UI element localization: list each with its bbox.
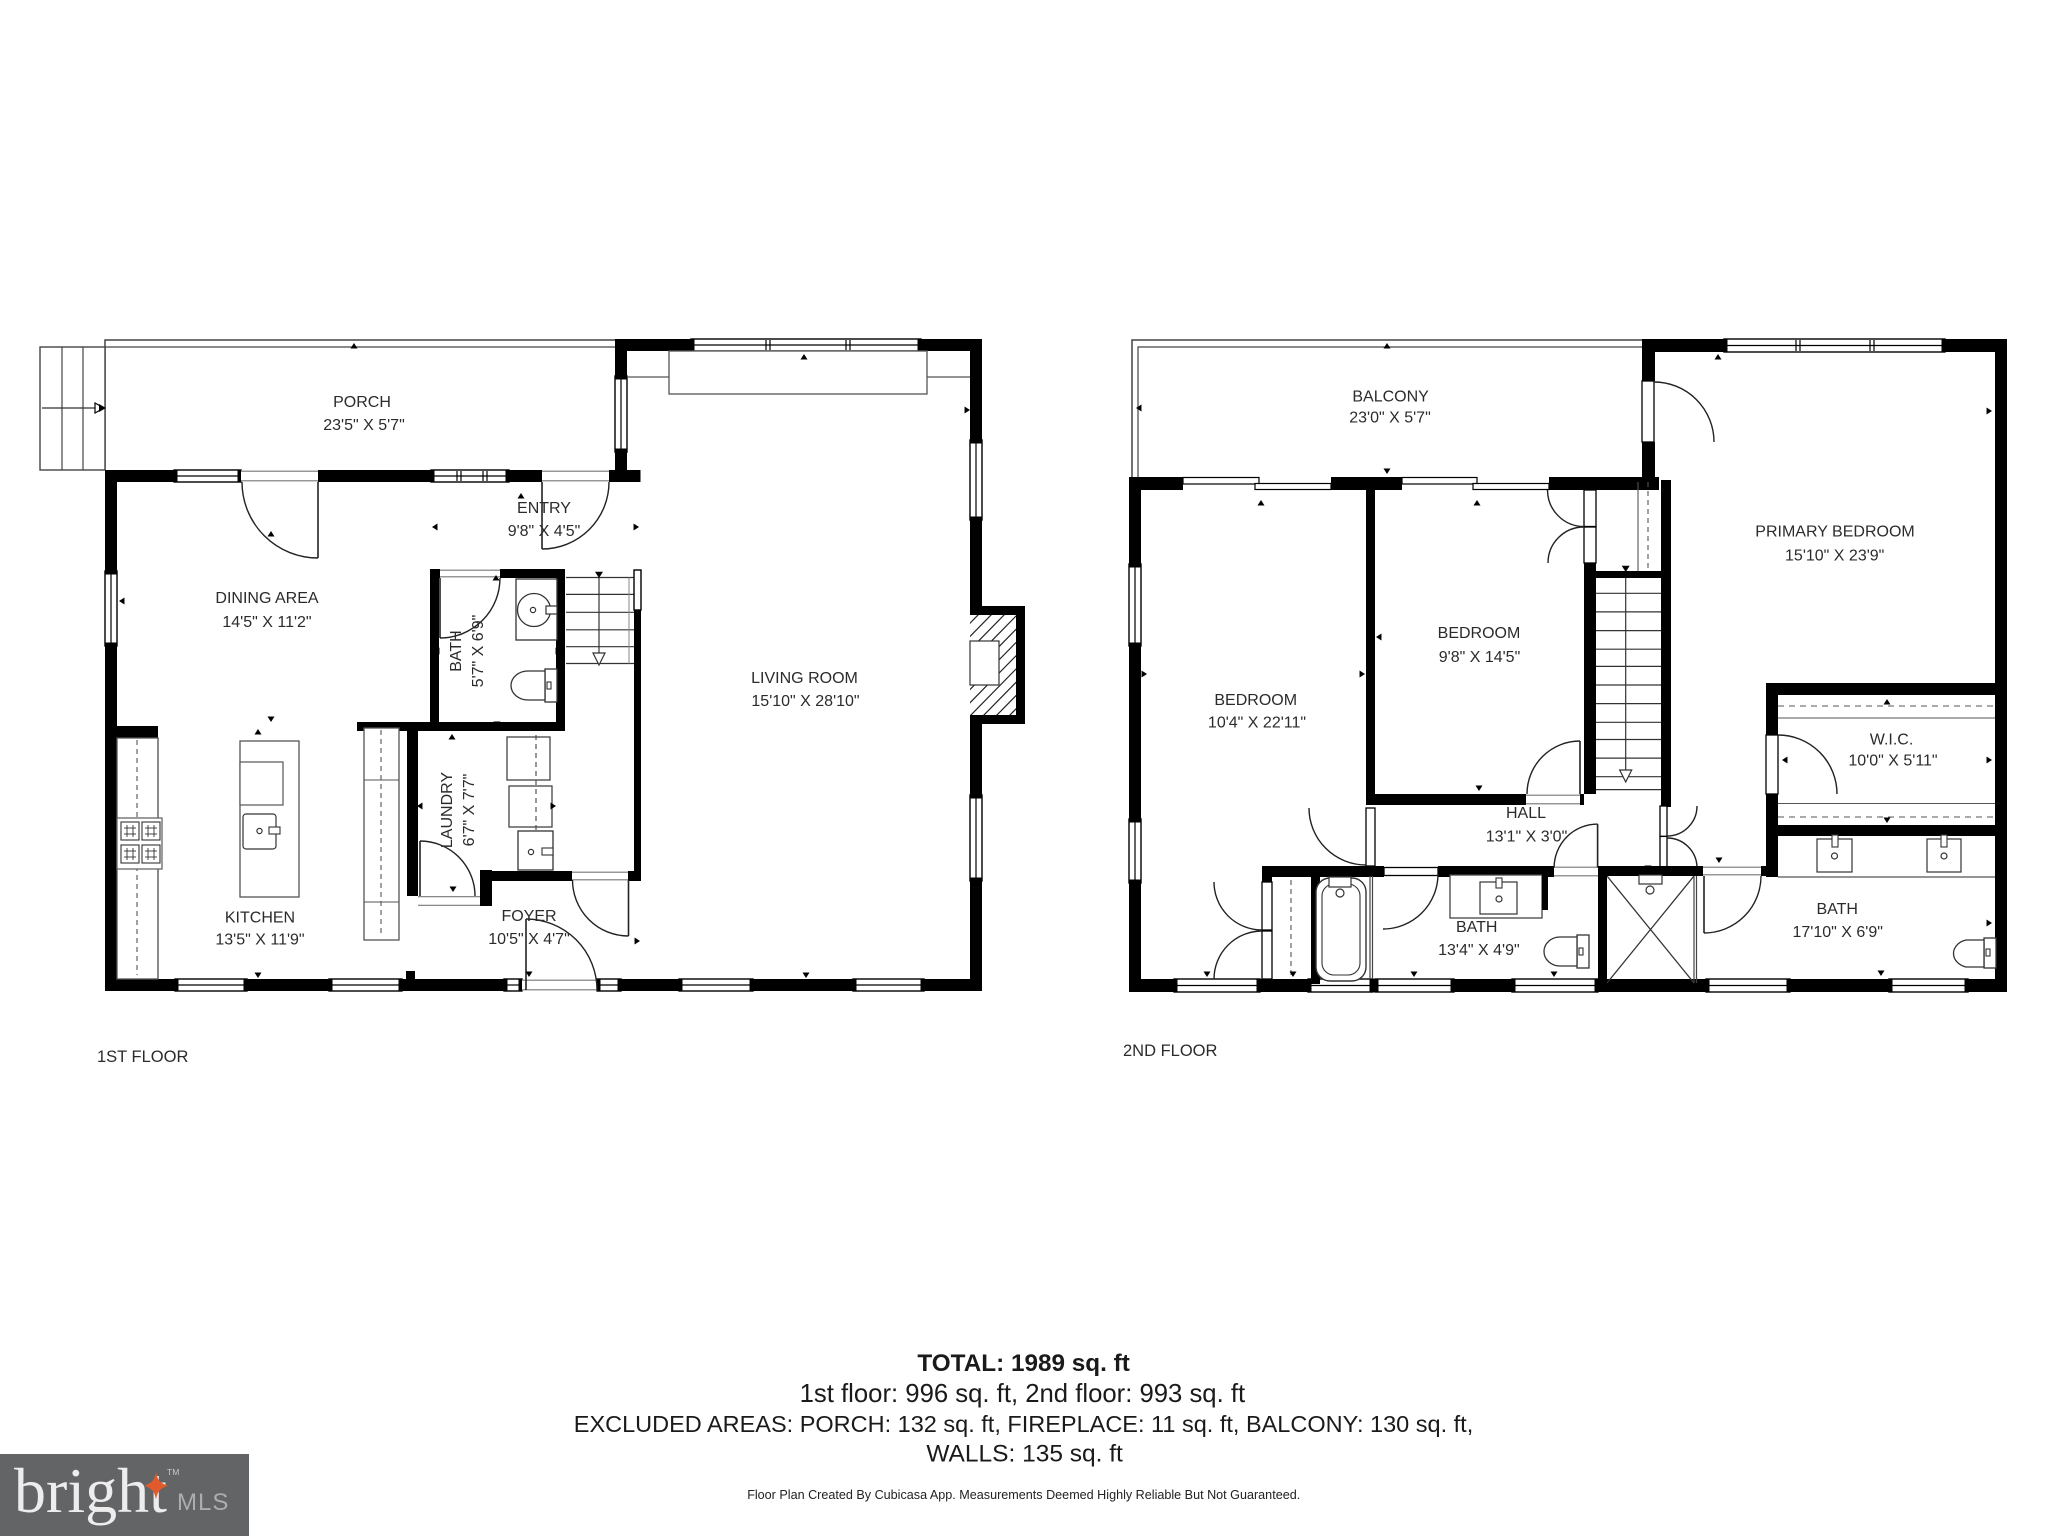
svg-text:10'5" X 4'7": 10'5" X 4'7" xyxy=(488,931,570,948)
svg-text:13'5" X 11'9": 13'5" X 11'9" xyxy=(215,932,304,949)
svg-text:bright: bright xyxy=(14,1455,167,1526)
svg-text:9'8" X 14'5": 9'8" X 14'5" xyxy=(1439,649,1521,666)
svg-text:PORCH: PORCH xyxy=(333,394,391,411)
svg-text:1ST FLOOR: 1ST FLOOR xyxy=(97,1048,188,1066)
svg-text:15'10" X 23'9": 15'10" X 23'9" xyxy=(1785,548,1884,565)
svg-text:LAUNDRY: LAUNDRY xyxy=(439,772,456,849)
svg-text:17'10" X 6'9": 17'10" X 6'9" xyxy=(1792,924,1882,941)
svg-text:TOTAL: 1989 sq. ft: TOTAL: 1989 sq. ft xyxy=(917,1350,1129,1377)
svg-text:DINING AREA: DINING AREA xyxy=(215,590,318,607)
svg-text:13'1" X 3'0": 13'1" X 3'0" xyxy=(1486,829,1568,846)
svg-text:TM: TM xyxy=(167,1467,179,1477)
svg-text:ENTRY: ENTRY xyxy=(517,500,571,517)
svg-text:13'4" X 4'9": 13'4" X 4'9" xyxy=(1438,942,1520,959)
svg-text:Floor Plan Created By Cubicasa: Floor Plan Created By Cubicasa App. Meas… xyxy=(747,1488,1300,1502)
svg-text:9'8" X 4'5": 9'8" X 4'5" xyxy=(508,523,581,540)
svg-text:BEDROOM: BEDROOM xyxy=(1214,692,1297,709)
svg-text:BEDROOM: BEDROOM xyxy=(1438,625,1521,642)
svg-text:BATH: BATH xyxy=(1456,919,1497,936)
svg-text:MLS: MLS xyxy=(177,1489,229,1516)
svg-text:23'5" X 5'7": 23'5" X 5'7" xyxy=(323,417,405,434)
svg-text:10'0" X 5'11": 10'0" X 5'11" xyxy=(1848,753,1937,770)
svg-text:EXCLUDED AREAS: PORCH: 132 sq.: EXCLUDED AREAS: PORCH: 132 sq. ft, FIREP… xyxy=(574,1411,1473,1437)
svg-text:FOYER: FOYER xyxy=(501,908,556,925)
svg-text:BATH: BATH xyxy=(1816,901,1857,918)
svg-text:1st floor: 996 sq. ft, 2nd flo: 1st floor: 996 sq. ft, 2nd floor: 993 sq… xyxy=(800,1380,1246,1408)
svg-text:BALCONY: BALCONY xyxy=(1352,389,1429,406)
svg-text:6'7" X 7'7": 6'7" X 7'7" xyxy=(461,774,478,847)
svg-text:PRIMARY BEDROOM: PRIMARY BEDROOM xyxy=(1755,524,1914,541)
svg-text:2ND FLOOR: 2ND FLOOR xyxy=(1123,1042,1218,1060)
svg-text:10'4" X 22'11": 10'4" X 22'11" xyxy=(1208,715,1306,732)
svg-text:LIVING ROOM: LIVING ROOM xyxy=(751,670,858,687)
svg-text:WALLS: 135 sq. ft: WALLS: 135 sq. ft xyxy=(926,1441,1123,1468)
svg-text:BATH: BATH xyxy=(448,630,465,671)
svg-text:15'10" X 28'10": 15'10" X 28'10" xyxy=(751,693,859,710)
svg-text:23'0" X 5'7": 23'0" X 5'7" xyxy=(1349,410,1431,427)
svg-text:KITCHEN: KITCHEN xyxy=(225,910,295,927)
svg-text:5'7" X 6'9": 5'7" X 6'9" xyxy=(470,615,487,688)
svg-text:HALL: HALL xyxy=(1506,805,1546,822)
svg-text:W.I.C.: W.I.C. xyxy=(1870,732,1914,749)
svg-text:14'5" X 11'2": 14'5" X 11'2" xyxy=(222,614,311,631)
